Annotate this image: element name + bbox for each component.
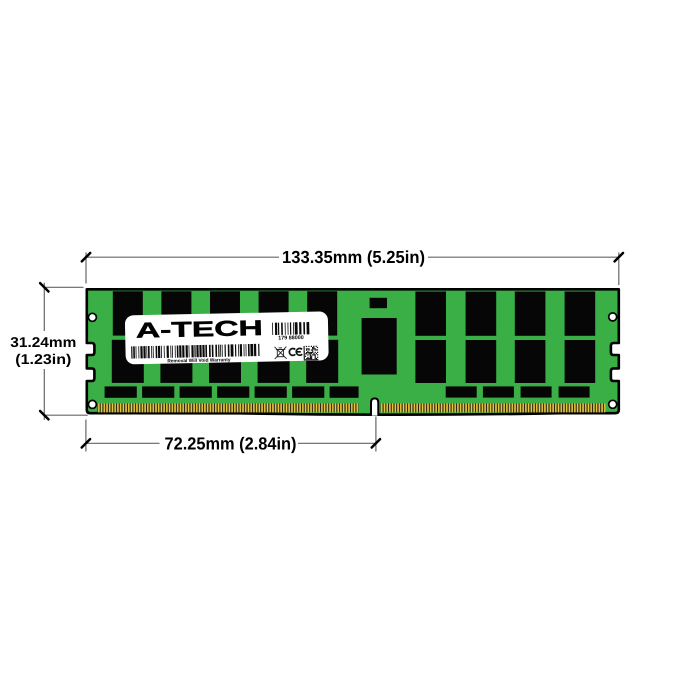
svg-text:A-TECH: A-TECH bbox=[136, 316, 263, 343]
svg-text:31.24mm: 31.24mm bbox=[10, 335, 76, 351]
svg-text:(1.23in): (1.23in) bbox=[15, 352, 71, 368]
svg-text:72.25mm (2.84in): 72.25mm (2.84in) bbox=[165, 434, 297, 454]
svg-text:179 88000: 179 88000 bbox=[278, 335, 304, 342]
svg-text:133.35mm (5.25in): 133.35mm (5.25in) bbox=[282, 247, 425, 267]
